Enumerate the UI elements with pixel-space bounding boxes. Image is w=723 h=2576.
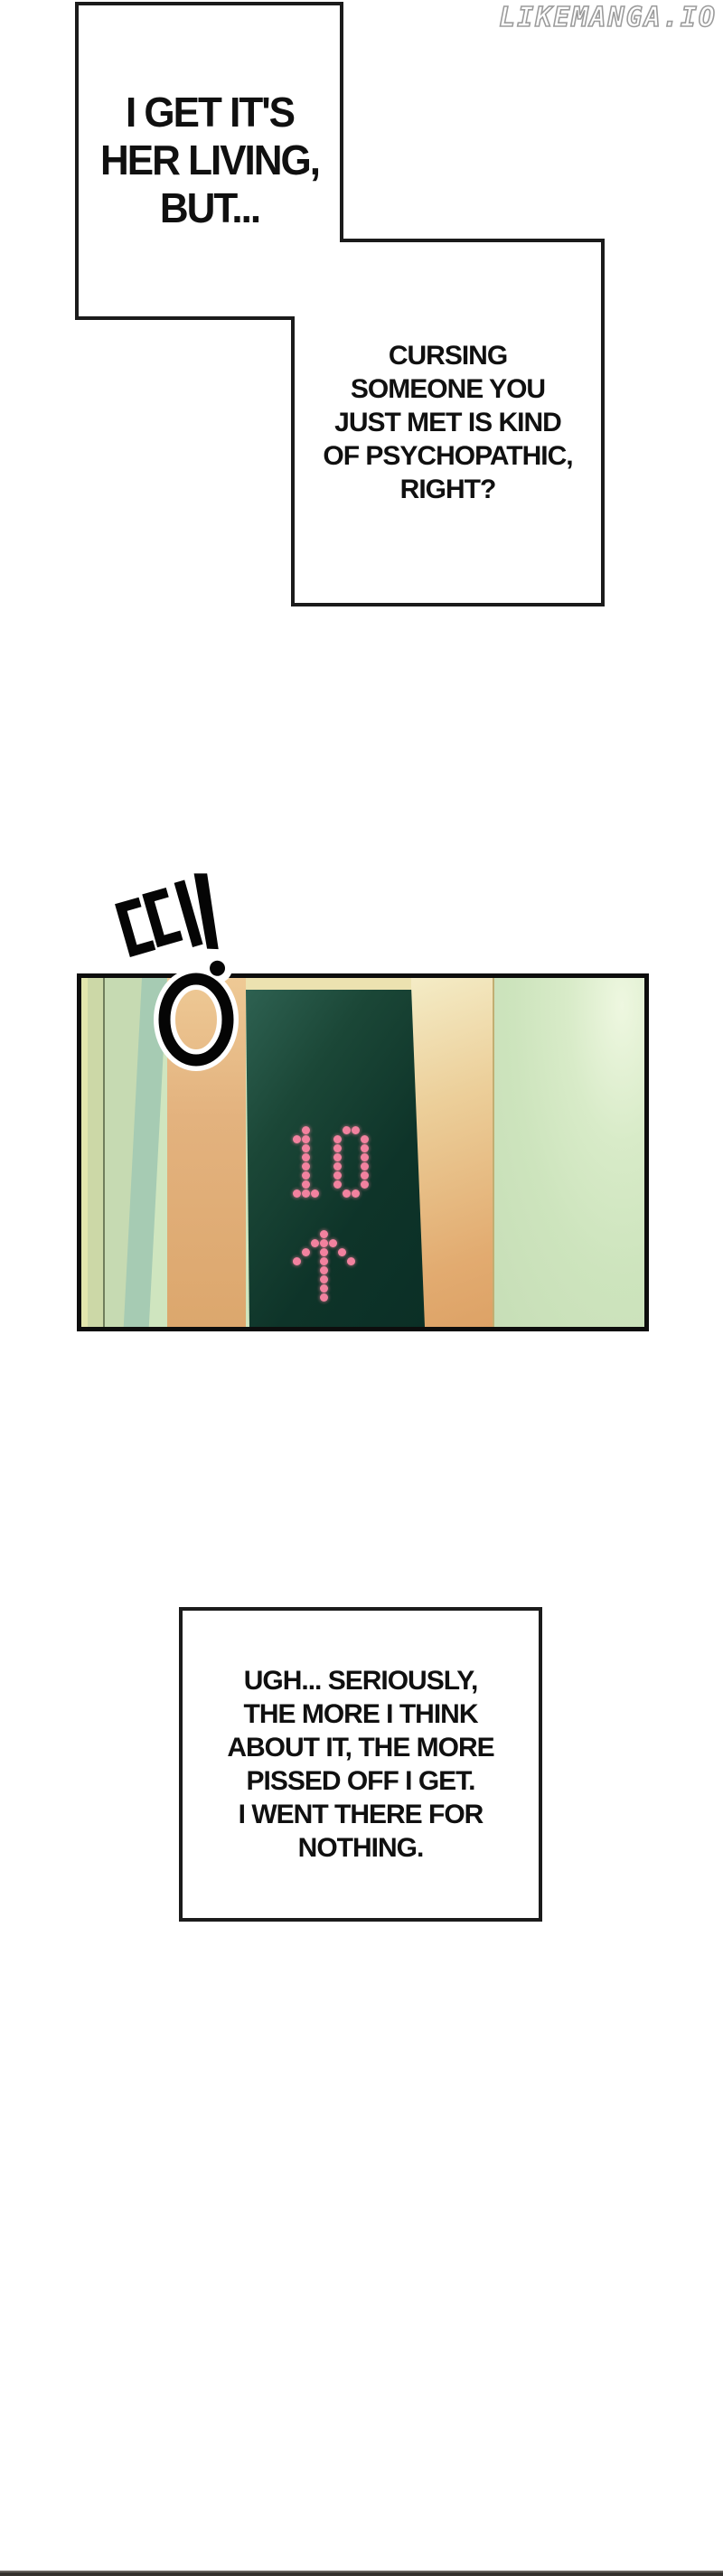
dot-off <box>337 1283 346 1293</box>
dot-off <box>292 1125 301 1134</box>
bubble-line: UGH... SERIOUSLY, <box>244 1664 478 1697</box>
dot-off <box>319 1170 328 1180</box>
dot-off <box>283 1189 292 1198</box>
dot-off <box>292 1274 301 1283</box>
dot <box>293 1135 301 1143</box>
right-wall <box>494 978 644 1327</box>
dot-off <box>301 1293 310 1302</box>
dot-off <box>319 1143 328 1152</box>
dot-off <box>337 1238 346 1247</box>
dot-off <box>351 1152 360 1161</box>
dot-off <box>360 1189 369 1198</box>
dot <box>333 1144 342 1152</box>
dot <box>329 1239 337 1247</box>
dot <box>302 1180 310 1189</box>
dot-off <box>301 1274 310 1283</box>
bubble-line: OF PSYCHOPATHIC, <box>323 439 572 473</box>
bubble-line: BUT... <box>160 184 259 232</box>
dot <box>361 1135 369 1143</box>
dot-off <box>328 1229 337 1238</box>
dot-off <box>328 1274 337 1283</box>
dot-off <box>360 1125 369 1134</box>
bubble-line: JUST MET IS KIND <box>334 406 561 439</box>
bubble-line: HER LIVING, <box>100 137 319 185</box>
dot <box>333 1162 342 1170</box>
dot-off <box>292 1283 301 1293</box>
bubble-line: THE MORE I THINK <box>244 1697 478 1731</box>
dot-off <box>351 1180 360 1189</box>
dot-off <box>283 1125 292 1134</box>
dot-off <box>292 1152 301 1161</box>
bubble-line: I WENT THERE FOR <box>239 1798 484 1831</box>
dot-off <box>310 1293 319 1302</box>
wall-strip-2 <box>88 978 103 1327</box>
dot <box>361 1180 369 1189</box>
dot-off <box>310 1256 319 1265</box>
dot-off <box>301 1229 310 1238</box>
dot <box>320 1257 328 1265</box>
dot-off <box>337 1256 346 1265</box>
dot-off <box>310 1229 319 1238</box>
bubble-line: NOTHING. <box>298 1831 424 1865</box>
dot-off <box>292 1180 301 1189</box>
dot-off <box>292 1265 301 1274</box>
dot-off <box>292 1143 301 1152</box>
dot <box>333 1135 342 1143</box>
dot <box>320 1266 328 1274</box>
dot-off <box>337 1229 346 1238</box>
dot-off <box>342 1170 351 1180</box>
dot-off <box>292 1170 301 1180</box>
dot-off <box>346 1293 355 1302</box>
dot-off <box>346 1265 355 1274</box>
dot-off <box>319 1180 328 1189</box>
speech-bubble-2-text: CURSINGSOMEONE YOUJUST MET IS KINDOF PSY… <box>296 244 599 601</box>
dot-matrix-grid <box>292 1229 355 1302</box>
floor-direction-arrow <box>292 1229 355 1302</box>
dot-off <box>292 1161 301 1170</box>
dot-off <box>337 1293 346 1302</box>
bubble-line: CURSING <box>389 339 507 372</box>
floor-digits <box>283 1125 369 1198</box>
floor-display <box>246 990 425 1327</box>
dot-off <box>351 1170 360 1180</box>
bubble-line: ABOUT IT, THE MORE <box>227 1731 493 1764</box>
dot <box>302 1126 310 1134</box>
dot <box>333 1153 342 1161</box>
dot-off <box>310 1161 319 1170</box>
dot <box>347 1257 355 1265</box>
dot <box>333 1171 342 1180</box>
dot-off <box>346 1229 355 1238</box>
dot <box>320 1230 328 1238</box>
dot <box>311 1239 319 1247</box>
dot <box>302 1248 310 1256</box>
dot-off <box>333 1189 342 1198</box>
dot-off <box>351 1134 360 1143</box>
dot-off <box>328 1265 337 1274</box>
dot <box>293 1257 301 1265</box>
dot-off <box>310 1265 319 1274</box>
dot-off <box>283 1152 292 1161</box>
dot-off <box>310 1170 319 1180</box>
dot <box>333 1180 342 1189</box>
dot-off <box>301 1283 310 1293</box>
dot <box>352 1126 360 1134</box>
dot-off <box>319 1125 328 1134</box>
dot-off <box>310 1180 319 1189</box>
dot-off <box>342 1180 351 1189</box>
dot-off <box>346 1274 355 1283</box>
dot-off <box>292 1229 301 1238</box>
dot-off <box>319 1152 328 1161</box>
dot-off <box>292 1293 301 1302</box>
dot-matrix-grid <box>283 1125 328 1198</box>
dot-off <box>328 1256 337 1265</box>
sfx-ding <box>110 864 250 1095</box>
dot-off <box>283 1161 292 1170</box>
dot <box>320 1275 328 1283</box>
manga-page: LIKEMANGA.IO I GET IT'SHER LIVING,BUT...… <box>0 0 723 2576</box>
dot-off <box>346 1238 355 1247</box>
dot-off <box>310 1143 319 1152</box>
dot-off <box>301 1256 310 1265</box>
dot <box>320 1248 328 1256</box>
dot <box>343 1189 351 1198</box>
dot-off <box>319 1134 328 1143</box>
dot-off <box>342 1152 351 1161</box>
dot-off <box>351 1161 360 1170</box>
bubble-line: PISSED OFF I GET. <box>246 1764 474 1798</box>
dot-off <box>310 1283 319 1293</box>
dot <box>352 1189 360 1198</box>
dot-off <box>310 1125 319 1134</box>
dot-off <box>333 1125 342 1134</box>
dot-off <box>283 1180 292 1189</box>
dot-off <box>310 1247 319 1256</box>
dot-off <box>310 1274 319 1283</box>
dot <box>302 1189 310 1198</box>
dot-off <box>301 1238 310 1247</box>
dot <box>302 1144 310 1152</box>
dot-off <box>342 1143 351 1152</box>
dot-off <box>346 1247 355 1256</box>
dot <box>320 1284 328 1293</box>
dot-off <box>301 1265 310 1274</box>
dot <box>361 1144 369 1152</box>
dot-matrix-grid <box>333 1125 369 1198</box>
dot-off <box>342 1161 351 1170</box>
dot-off <box>342 1134 351 1143</box>
dot-off <box>337 1265 346 1274</box>
dot-off <box>328 1293 337 1302</box>
dot <box>302 1153 310 1161</box>
display-lintel <box>246 978 411 990</box>
bubble-line: I GET IT'S <box>126 89 294 137</box>
dot-off <box>319 1161 328 1170</box>
dot <box>302 1162 310 1170</box>
dot-off <box>292 1247 301 1256</box>
dot <box>302 1135 310 1143</box>
dot-off <box>337 1274 346 1283</box>
dot-off <box>283 1143 292 1152</box>
dot-off <box>310 1152 319 1161</box>
dot <box>311 1189 319 1198</box>
dot <box>320 1293 328 1302</box>
dot-off <box>328 1247 337 1256</box>
dot <box>361 1162 369 1170</box>
dot <box>302 1171 310 1180</box>
dot <box>343 1126 351 1134</box>
dot-off <box>283 1134 292 1143</box>
dot <box>293 1189 301 1198</box>
dot <box>361 1171 369 1180</box>
wall-strip-1 <box>81 978 88 1327</box>
dot-off <box>319 1189 328 1198</box>
dot-off <box>292 1238 301 1247</box>
dot-off <box>346 1283 355 1293</box>
dot-off <box>351 1143 360 1152</box>
bubble-line: SOMEONE YOU <box>351 372 545 406</box>
dot-off <box>283 1170 292 1180</box>
dot-off <box>328 1283 337 1293</box>
bubble-line: RIGHT? <box>400 473 496 506</box>
dot-off <box>310 1134 319 1143</box>
speech-bubble-3: UGH... SERIOUSLY,THE MORE I THINKABOUT I… <box>179 1607 542 1922</box>
dot <box>320 1239 328 1247</box>
dot <box>338 1248 346 1256</box>
door-frame-right <box>411 978 494 1327</box>
bottom-divider <box>0 2571 723 2576</box>
dot <box>361 1153 369 1161</box>
